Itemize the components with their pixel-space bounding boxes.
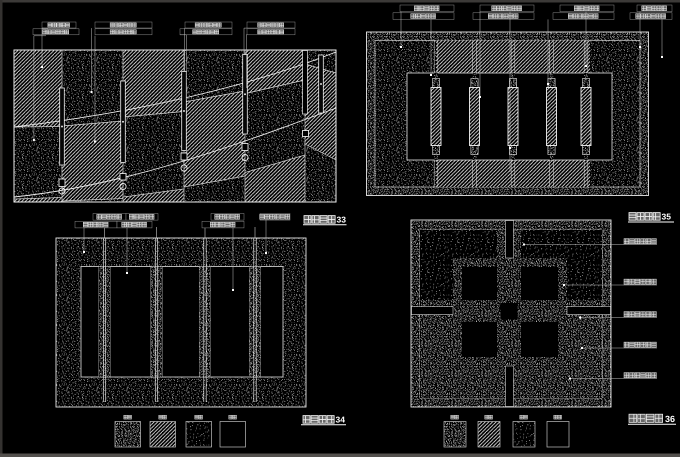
svg-text:35: 35: [662, 212, 672, 222]
svg-text:33: 33: [337, 215, 347, 225]
svg-text:36: 36: [665, 414, 675, 424]
svg-text:34: 34: [336, 415, 346, 425]
